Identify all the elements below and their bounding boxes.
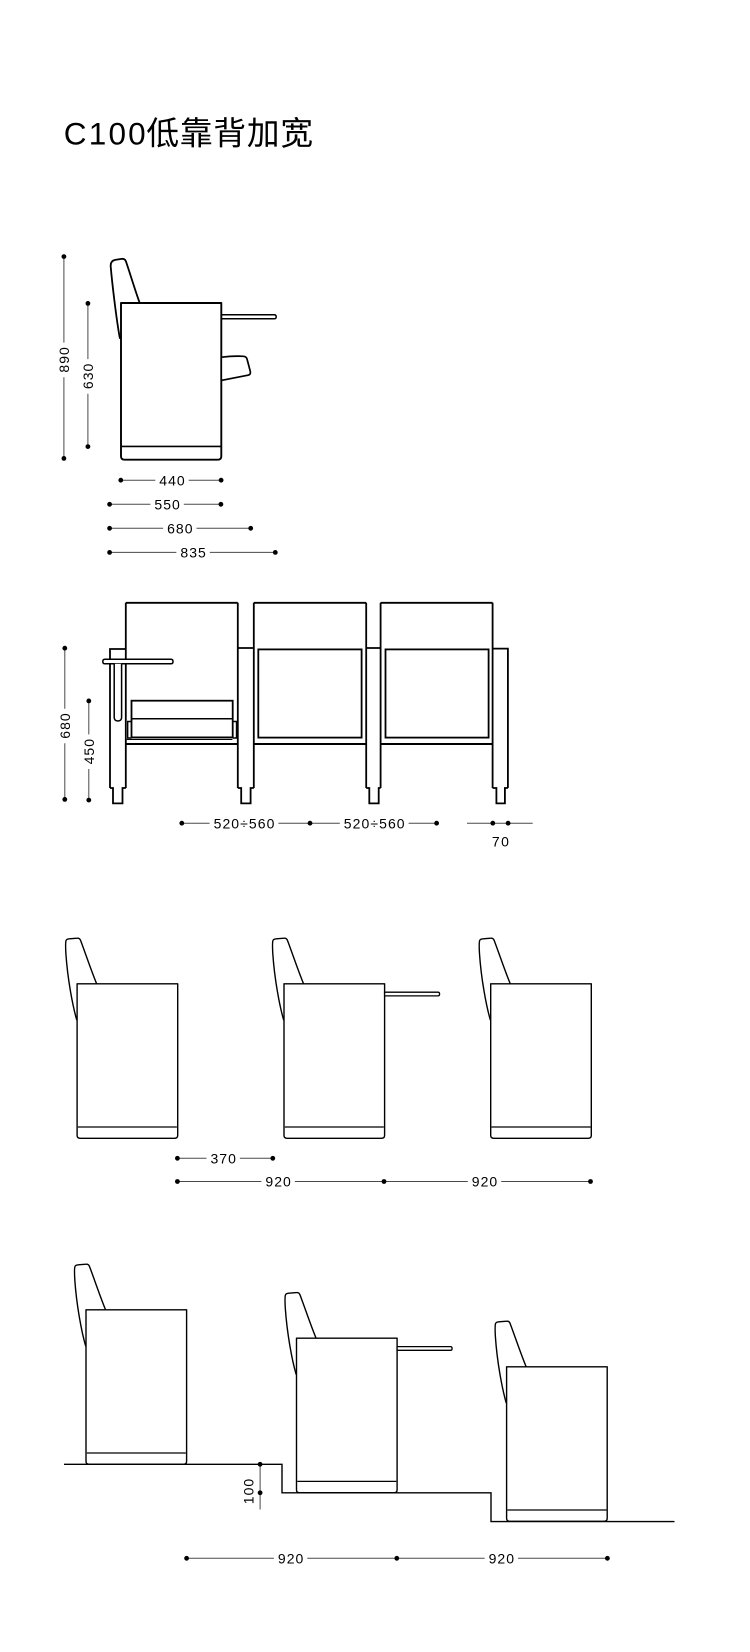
svg-text:920: 920 [265, 1174, 291, 1190]
svg-text:520÷560: 520÷560 [344, 815, 405, 831]
svg-text:680: 680 [167, 520, 193, 536]
svg-text:920: 920 [489, 1550, 515, 1566]
svg-text:70: 70 [492, 833, 509, 849]
svg-text:920: 920 [278, 1550, 304, 1566]
svg-text:520÷560: 520÷560 [214, 815, 275, 831]
svg-text:440: 440 [159, 472, 185, 488]
svg-text:550: 550 [154, 496, 180, 512]
svg-text:C100: C100 [64, 116, 148, 152]
svg-text:680: 680 [57, 713, 73, 739]
svg-text:890: 890 [56, 347, 72, 373]
svg-text:920: 920 [472, 1174, 498, 1190]
svg-text:450: 450 [81, 739, 97, 765]
svg-text:630: 630 [80, 363, 96, 389]
svg-text:370: 370 [211, 1150, 237, 1166]
svg-text:835: 835 [180, 545, 206, 561]
svg-text:100: 100 [241, 1479, 257, 1505]
